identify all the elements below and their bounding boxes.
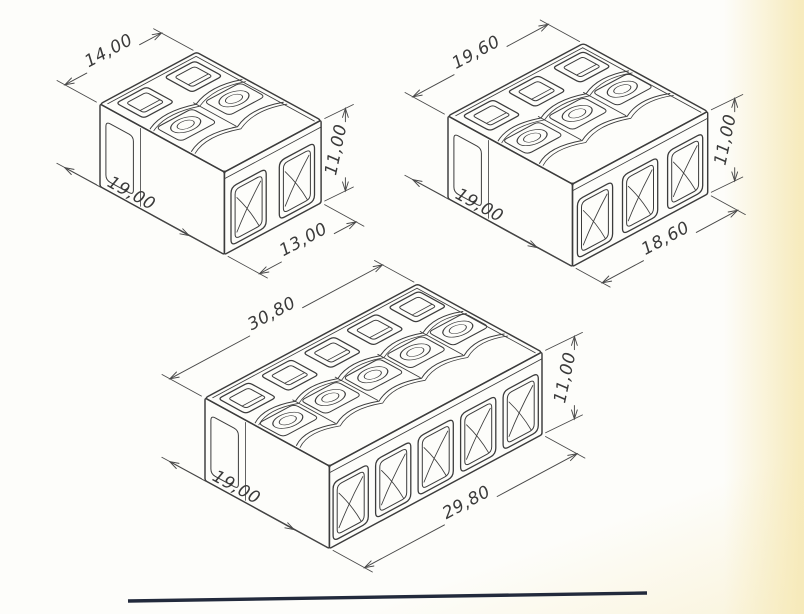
push-button-opening-outer [554,52,608,81]
dim-arrowhead [373,265,382,272]
push-button-detail-line [413,304,432,314]
scanned-drawing-page: 14,0019,0013,0011,0019,6019,0018,6011,00… [0,0,804,614]
push-button-detail-line [285,373,304,383]
dimension-line [602,261,643,283]
push-button-opening-outer [263,361,317,390]
dim-front-width: 29,80 [333,437,585,573]
dim-depth: 19,00 [405,175,569,264]
extension-line [333,550,372,572]
top-rim-line [108,56,196,103]
dim-label-depth: 19,00 [452,185,507,227]
dim-arrowhead [413,180,422,187]
push-button-opening-inner [230,389,265,408]
dim-label-top-width: 19,60 [449,32,504,74]
push-button-detail-line [487,113,506,123]
push-button-opening-inner [128,93,163,112]
clamp-spring-line [509,386,533,437]
dim-label-depth: 19,00 [104,173,159,215]
dim-top-width: 30,80 [162,261,414,397]
dim-label-front-width: 13,00 [276,219,331,261]
funnel-oval-outer [602,78,643,100]
clamp-spring-line [673,146,697,197]
dim-label-front-width: 29,80 [439,482,494,524]
clamp-spring-line [382,470,404,498]
dimension-line [65,73,87,85]
extension-line [228,256,267,278]
push-button-detail-line [140,100,159,110]
dim-arrowhead [602,276,611,283]
dim-label-height: 11,00 [711,112,741,167]
footer-rule [128,593,647,601]
clamp-spring-line [424,431,448,482]
dim-arrowhead [568,454,577,461]
dimension-line [140,33,162,45]
push-button-opening-outer [390,292,444,321]
push-button-opening-outer [220,383,274,412]
dim-arrowhead [170,372,179,379]
dim-label-top-width: 30,80 [244,293,299,335]
funnel-oval-outer [310,386,351,408]
push-button-opening-outer [464,101,518,130]
dimension-line [170,462,206,482]
connector-2pole-figure: 14,0019,0013,0011,00 [57,29,364,278]
clamp-spring-line [339,493,361,521]
clamp-spring-line [237,198,259,226]
push-button-opening-outer [348,315,402,344]
clamp-spring-line [628,170,652,221]
dim-depth: 19,00 [162,457,326,546]
connectors-technical-drawing: 14,0019,0013,0011,0019,6019,0018,6011,00… [0,0,804,614]
dim-depth: 19,00 [57,163,221,252]
extension-line [546,332,583,350]
push-button-opening-inner [315,343,350,362]
push-button-detail-line [532,89,551,99]
clamp-spring-line [509,402,531,430]
funnel-oval-outer [213,88,254,110]
push-button-opening-inner [519,82,554,101]
push-button-opening-inner [400,297,435,316]
dim-arrowhead [65,78,74,85]
dimension-line [65,168,101,188]
dim-height: 11,00 [321,105,353,202]
extension-line [405,93,445,115]
dim-height: 11,00 [711,95,743,193]
clamp-spring-line [583,211,605,239]
push-button-opening-inner [272,366,307,385]
funnel-oval-outer [352,364,393,386]
dim-label-height: 11,00 [550,350,580,405]
dimension-line [170,336,250,379]
dim-label-height: 11,00 [321,122,351,177]
dimension-line [501,228,537,248]
extension-line [711,177,743,192]
extension-line [162,375,202,397]
dimension-line [303,265,383,308]
push-button-opening-inner [564,58,599,77]
push-button-opening-outer [118,88,172,117]
extension-line [57,81,97,103]
funnel-oval-outer [267,409,308,431]
push-button-detail-line [577,65,596,75]
dimension-line [258,510,294,530]
extension-line [325,187,354,201]
clamp-spring-line [285,155,309,206]
clamp-spring-line [339,477,363,528]
clamp-spring-line [285,172,307,200]
dim-label-depth: 19,00 [209,467,264,509]
clamp-spring-line [237,181,261,232]
clamp-spring-line [583,194,607,245]
dim-arrowhead [347,222,356,229]
dimension-line [413,180,449,200]
push-button-opening-inner [176,67,211,86]
extension-line [711,95,743,110]
push-button-opening-outer [305,338,359,367]
clamp-spring-line [628,186,650,214]
dim-label-top-width: 14,00 [81,30,136,72]
front-lip-line [224,127,321,179]
connector-5pole-figure: 30,8019,0029,8011,00 [162,261,585,573]
extension-line [325,105,354,119]
dim-top-width: 19,60 [405,20,580,114]
dimension-line [260,262,282,274]
funnel-oval-outer [165,114,206,136]
dim-arrowhead [152,33,161,40]
connector-3pole-figure: 19,6019,0018,6011,00 [405,20,746,287]
clamp-spring-line [673,162,695,190]
dim-arrowhead [413,90,422,97]
dim-arrowhead [365,561,374,568]
dimension-line [153,216,189,236]
dim-arrowhead [539,24,548,31]
dimension-line [497,454,577,497]
dimension-line [334,222,356,234]
dim-height: 11,00 [546,332,583,432]
push-button-opening-inner [474,106,509,125]
dimension-line [696,210,737,232]
push-button-opening-outer [509,76,563,105]
push-button-opening-outer [166,62,220,91]
clamp-spring-line [467,425,489,453]
dimension-line [365,525,445,568]
clamp-spring-line [382,454,406,505]
extension-line [546,415,583,433]
push-button-opening-inner [357,320,392,339]
dimension-line [507,24,548,46]
dim-arrowhead [65,168,74,175]
funnel-oval-outer [511,126,552,148]
dim-label-front-width: 18,60 [638,218,693,260]
clamp-spring-line [424,448,446,476]
dimension-line [413,75,454,97]
extension-line [375,261,415,283]
dim-arrowhead [170,462,179,469]
push-button-detail-line [328,350,347,360]
clamp-spring-line [467,408,491,459]
funnel-oval-outer [437,318,478,340]
extension-line [540,20,580,42]
dim-arrowhead [728,210,737,217]
push-button-detail-line [189,74,208,84]
funnel-oval-outer [557,102,598,124]
extension-line [154,29,194,51]
extension-line [546,437,586,459]
extension-line [325,205,364,227]
extension-line [576,268,610,287]
dim-arrowhead [260,267,269,274]
push-button-detail-line [370,327,389,337]
funnel-oval-outer [395,341,436,363]
ledge-wave-line [300,336,508,447]
